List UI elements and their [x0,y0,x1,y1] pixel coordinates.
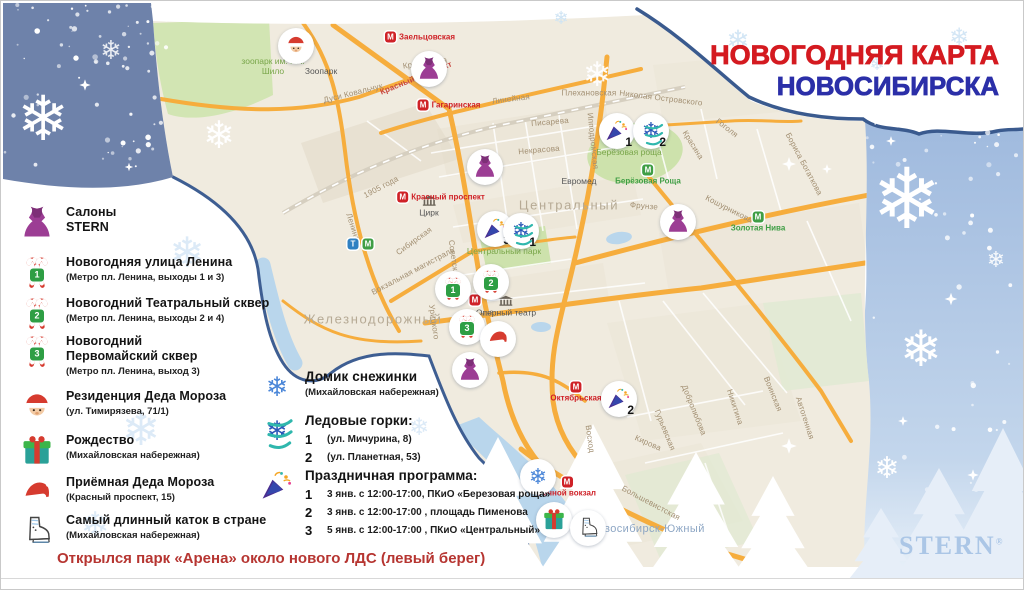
legend-title: Самый длинный каток в стране [66,513,266,528]
row-number: 1 [305,432,317,447]
legend-title: Новогодний Первомайский сквер [66,334,200,364]
slide-row: 2(ул. Планетная, 53) [305,450,421,465]
page-title: НОВОГОДНЯЯ КАРТА НОВОСИБИРСКА [710,39,999,103]
brand-name: STERN [899,531,996,560]
snow-house-title: Домик снежинки [305,369,439,385]
row-number: 2 [305,450,317,465]
legend-item: 2 Новогодний Театральный сквер (Метро пл… [19,296,281,332]
row-text: 3 янв. с 12:00-17:00 , площадь Пименова [327,505,528,520]
legend-program: Праздничная программа: 13 янв. с 12:00-1… [259,468,544,538]
slide-row: 1(ул. Мичурина, 8) [305,432,421,447]
legend-title: Резиденция Деда Мороза [66,389,226,404]
gift-icon [19,433,55,469]
legend-item: Приёмная Деда Мороза (Красный проспект, … [19,475,281,511]
title-line2: НОВОСИБИРСКА [710,71,999,102]
legend-subtitle: (ул. Тимирязева, 71/1) [66,406,226,417]
ice-slide-icon: ❄ [259,413,295,449]
row-text: (ул. Мичурина, 8) [327,432,412,447]
legend-item: Салоны STERN [19,205,281,241]
snow-house-subtitle: (Михайловская набережная) [305,387,439,398]
legend-title: Рождество [66,433,200,448]
program-row: 35 янв. с 12:00-17:00 , ПКиО «Центральны… [305,523,550,538]
dress-icon [19,205,55,241]
legend-ice-slides: ❄ Ледовые горки: 1(ул. Мичурина, 8)2(ул.… [259,413,544,465]
candy-icon: 1 [19,255,55,291]
candy-icon: 2 [19,296,55,332]
legend-subtitle: (Михайловская набережная) [66,530,266,541]
santa-icon [19,389,55,425]
legend-layer: Салоны STERN 1 Новогодняя улица Ленина (… [1,1,1024,590]
legend-item: Рождество (Михайловская набережная) [19,433,281,469]
legend-number-badge: 3 [29,346,45,361]
legend-subtitle: (Метро пл. Ленина, выходы 2 и 4) [66,313,269,324]
skate-icon [19,513,55,549]
row-text: (ул. Планетная, 53) [327,450,421,465]
legend-item: Самый длинный каток в стране (Михайловск… [19,513,281,549]
legend-number-badge: 2 [29,308,45,323]
frame-hairline [1,578,1024,579]
program-row: 13 янв. с 12:00-17:00, ПКиО «Березовая р… [305,487,550,502]
row-number: 1 [305,487,317,502]
legend-subtitle: (Метро пл. Ленина, выходы 1 и 3) [66,272,232,283]
legend-number-badge: 1 [29,267,45,282]
legend-title: Новогодний Театральный сквер [66,296,269,311]
hat-icon [19,475,55,511]
legend-subtitle: (Михайловская набережная) [66,450,200,461]
program-title: Праздничная программа: [305,468,550,484]
legend-title: Приёмная Деда Мороза [66,475,214,490]
brand-logo: STERN® [899,531,1002,561]
legend-item: 3 Новогодний Первомайский сквер (Метро п… [19,334,281,377]
row-text: 3 янв. с 12:00-17:00, ПКиО «Березовая ро… [327,487,550,502]
program-row: 23 янв. с 12:00-17:00 , площадь Пименова [305,505,550,520]
legend-subtitle: (Метро пл. Ленина, выход 3) [66,366,200,377]
party-popper-icon [259,468,295,504]
legend-title: Новогодняя улица Ленина [66,255,232,270]
row-number: 2 [305,505,317,520]
legend-title: Салоны STERN [66,205,116,235]
title-line1: НОВОГОДНЯЯ КАРТА [710,39,999,71]
legend-item: 1 Новогодняя улица Ленина (Метро пл. Лен… [19,255,281,291]
row-number: 3 [305,523,317,538]
candy-icon: 3 [19,334,55,370]
registered-mark: ® [996,536,1003,546]
ice-slides-title: Ледовые горки: [305,413,421,429]
legend-subtitle: (Красный проспект, 15) [66,492,214,503]
footer-note: Открылся парк «Арена» около нового ЛДС (… [57,550,485,567]
poster-canvas: ❄❄❄❄❄❄❄❄❄❄❄❄❄❄❄❄ ЦентральныйЖелезнодорож… [0,0,1024,590]
legend-snow-house: ❄ Домик снежинки (Михайловская набережна… [259,369,544,405]
snowflake-icon: ❄ [259,369,295,405]
row-text: 5 янв. с 12:00-17:00 , ПКиО «Центральный… [327,523,540,538]
legend-item: Резиденция Деда Мороза (ул. Тимирязева, … [19,389,281,425]
